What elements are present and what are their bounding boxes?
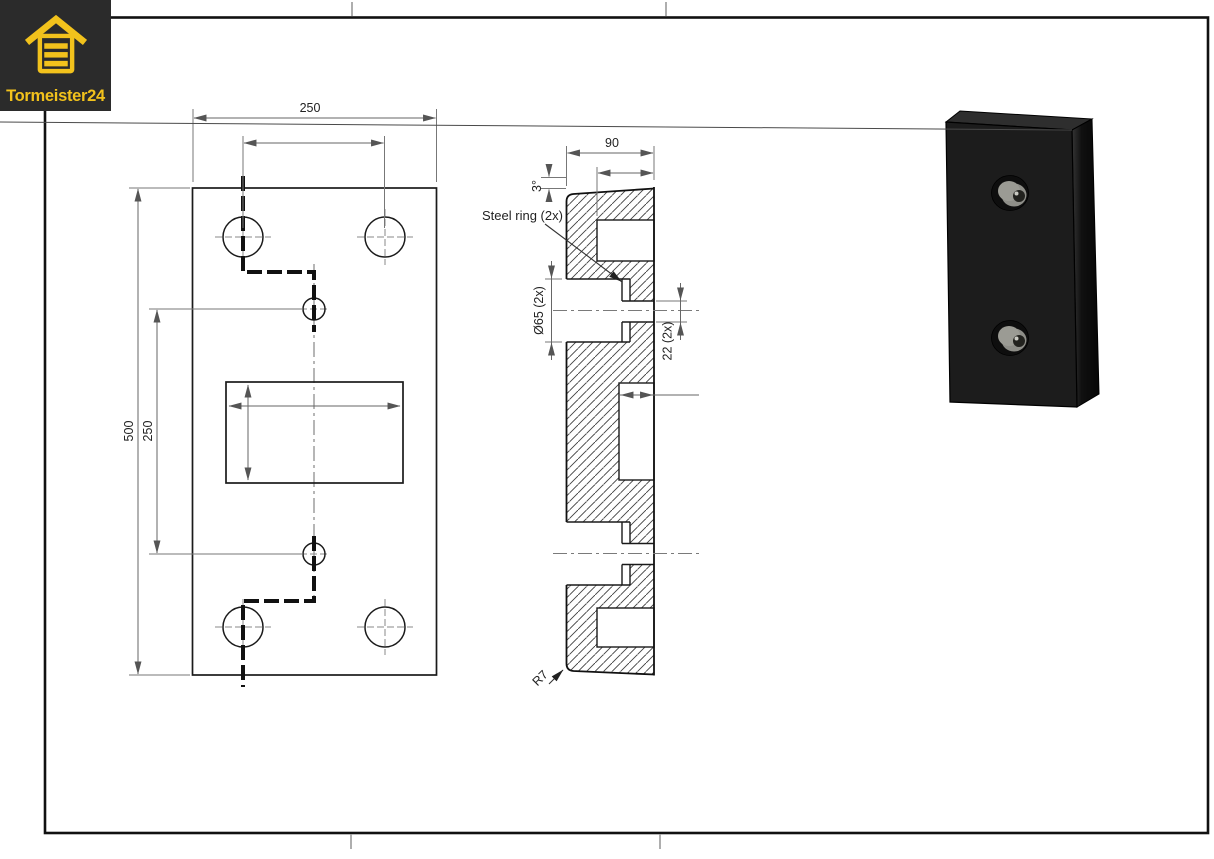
dim-hole-dia: 22 (2x)	[656, 283, 687, 360]
dim-corner-radius: R7	[530, 668, 563, 689]
render-hole-lower	[992, 321, 1029, 356]
dim-radius-label: R7	[530, 668, 551, 689]
dim-width-top: 250	[193, 101, 437, 182]
render-hole-upper	[992, 176, 1029, 211]
section-view: 90 3° Steel ring (2x)	[482, 136, 699, 689]
dim-height-label: 500	[122, 421, 136, 442]
drawing-page: Tormeister24	[0, 0, 1214, 859]
brand-name: Tormeister24	[6, 88, 105, 105]
brand-logo: Tormeister24	[0, 0, 111, 111]
dim-hole-dia-label: 22 (2x)	[661, 322, 675, 361]
dim-angle: 3°	[530, 165, 566, 201]
dim-hole-spacing-label: 250	[141, 421, 155, 442]
front-view: 250 500	[122, 101, 437, 687]
dim-depth: 90	[567, 136, 655, 186]
dim-depth-label: 90	[605, 136, 619, 150]
render-3d	[0, 111, 1099, 407]
dim-height: 500	[122, 188, 190, 675]
garage-door-icon	[0, 0, 111, 88]
steel-ring-label: Steel ring (2x)	[482, 208, 563, 223]
render-front-face	[946, 122, 1077, 407]
dim-counterbore-label: Ø65 (2x)	[532, 286, 546, 335]
dim-width-top-label: 250	[300, 101, 321, 115]
dim-angle-label: 3°	[530, 180, 544, 192]
drawing-sheet: 250 500	[0, 0, 1214, 859]
